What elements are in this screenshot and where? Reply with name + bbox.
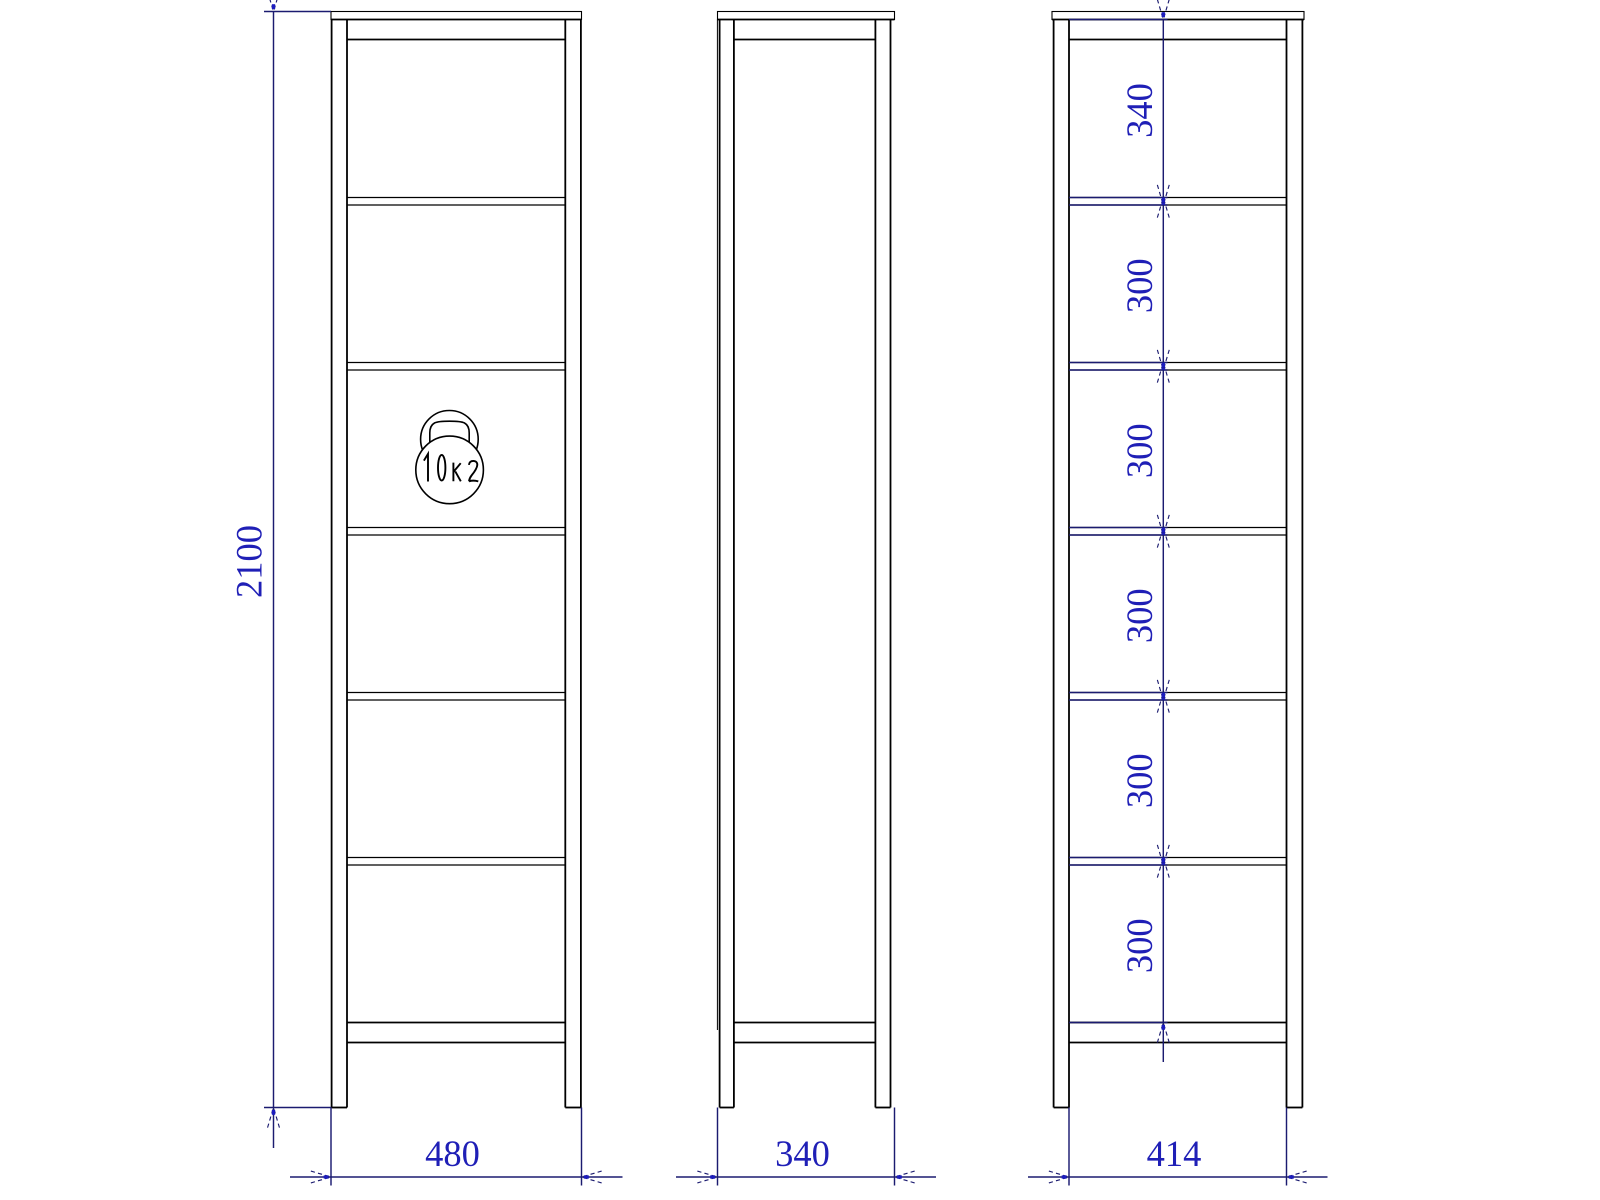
svg-text:480: 480	[425, 1133, 480, 1174]
svg-text:2100: 2100	[229, 525, 270, 598]
svg-text:300: 300	[1119, 423, 1160, 478]
svg-text:300: 300	[1119, 588, 1160, 643]
svg-text:340: 340	[1119, 83, 1160, 138]
svg-text:414: 414	[1147, 1133, 1202, 1174]
svg-text:300: 300	[1119, 753, 1160, 808]
svg-text:300: 300	[1119, 918, 1160, 973]
svg-text:340: 340	[775, 1133, 830, 1174]
svg-text:300: 300	[1119, 258, 1160, 313]
